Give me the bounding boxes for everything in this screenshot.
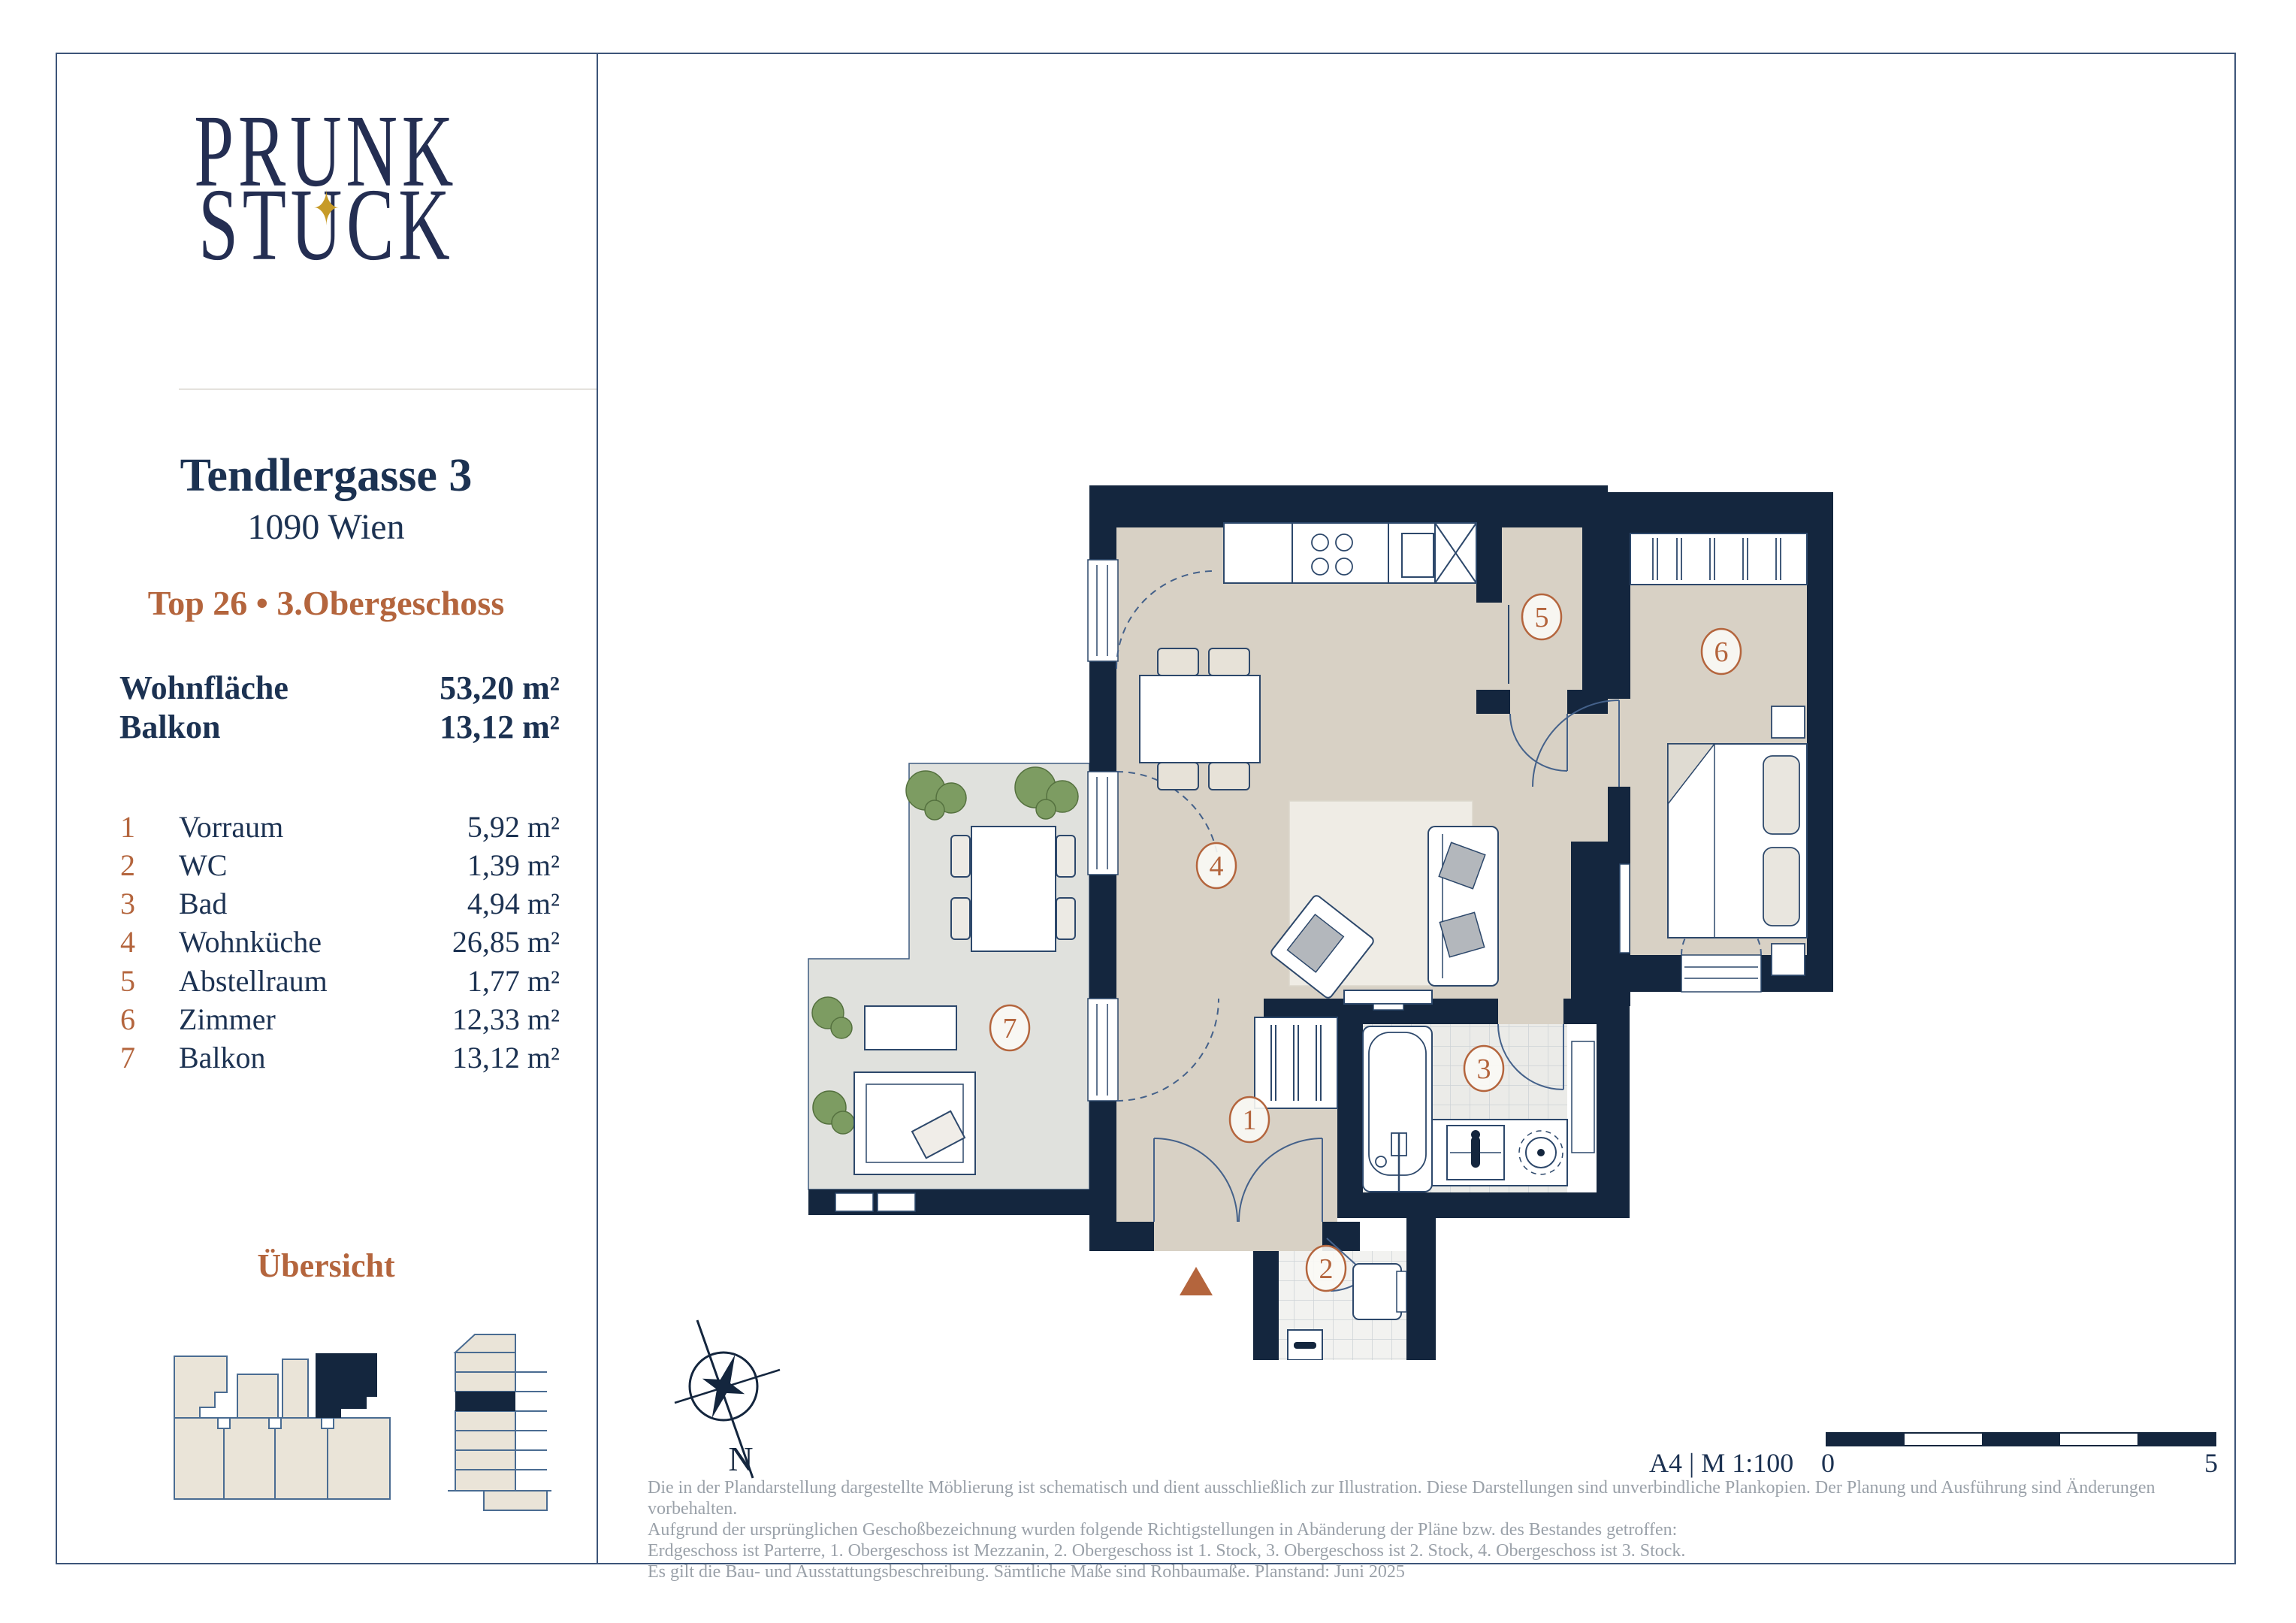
scale-bar	[1826, 1432, 2216, 1446]
toilet	[1353, 1264, 1401, 1319]
summary-label: Balkon	[119, 708, 221, 746]
compass-north-label: N	[728, 1440, 753, 1478]
room-name: WC	[179, 848, 227, 883]
room-name: Zimmer	[179, 1002, 276, 1037]
room-list-item: 3 Bad 4,94 m²	[56, 886, 597, 922]
brand-logo-line2: STUCK✦	[56, 188, 597, 261]
room-list-item: 1 Vorraum 5,92 m²	[56, 809, 597, 845]
room-label-4: 4	[1197, 843, 1236, 888]
kitchen-sink	[1402, 533, 1433, 577]
balcony-door	[1088, 772, 1118, 875]
room-number: 6	[120, 1002, 135, 1037]
disclaimer-block: Die in der Plandarstellung dargestellte …	[648, 1477, 2229, 1582]
room-label-2: 2	[1307, 1246, 1346, 1291]
scale-segment	[1827, 1434, 1905, 1445]
svg-text:1: 1	[1243, 1105, 1257, 1136]
brand-logo: PRUNK STUCK✦	[56, 114, 597, 261]
balcony-window	[878, 1193, 915, 1211]
overview-section-diagram	[440, 1330, 553, 1514]
floorplan-sheet: PRUNK STUCK✦ Tendlergasse 3 1090 Wien To…	[0, 0, 2296, 1623]
chair	[1056, 836, 1075, 877]
scale-segment	[1905, 1434, 1982, 1445]
room-name: Balkon	[179, 1040, 266, 1075]
svg-text:7: 7	[1003, 1013, 1017, 1044]
disclaimer-line: Erdgeschoss ist Parterre, 1. Obergeschos…	[648, 1540, 2229, 1561]
tv-sideboard	[1344, 990, 1432, 1004]
room-label-5: 5	[1522, 594, 1561, 639]
summary-label: Wohnfläche	[119, 669, 289, 707]
svg-text:2: 2	[1319, 1253, 1334, 1285]
chair	[1158, 763, 1198, 790]
living-furniture	[1270, 801, 1498, 1010]
room-area: 1,77 m²	[467, 963, 560, 999]
room-label-6: 6	[1702, 629, 1741, 674]
star-icon: ✦	[313, 171, 340, 247]
room-number: 7	[120, 1040, 135, 1075]
room-area: 26,85 m²	[452, 924, 560, 960]
room-name: Abstellraum	[179, 963, 328, 999]
room-number: 2	[120, 848, 135, 883]
room-area: 1,39 m²	[467, 848, 560, 883]
svg-text:4: 4	[1210, 851, 1224, 882]
scale-segment	[1982, 1434, 2059, 1445]
room-name: Wohnküche	[179, 924, 322, 960]
outdoor-table	[971, 827, 1056, 951]
unit-line: Top 26 • 3.Obergeschoss	[56, 583, 597, 623]
nightstand	[1772, 944, 1805, 975]
balcony-window	[835, 1193, 873, 1211]
pillow	[1763, 848, 1799, 926]
compass-icon: N	[669, 1311, 804, 1488]
room-label-7: 7	[990, 1005, 1029, 1050]
svg-text:6: 6	[1714, 636, 1729, 668]
summary-row: Balkon 13,12 m²	[56, 708, 597, 747]
room-area: 4,94 m²	[467, 886, 560, 921]
room-number: 5	[120, 963, 135, 999]
disclaimer-line: Aufgrund der ursprünglichen Geschoßbezei…	[648, 1519, 2229, 1540]
entrance-arrow-icon	[1180, 1267, 1213, 1295]
disclaimer-line: Es gilt die Bau- und Ausstattungsbeschre…	[648, 1561, 2229, 1582]
room-name: Bad	[179, 886, 227, 921]
hall-wardrobe	[1255, 1017, 1337, 1108]
room-number: 4	[120, 924, 135, 960]
french-window	[1088, 560, 1118, 661]
room-area: 12,33 m²	[452, 1002, 560, 1037]
sidebar-divider	[597, 53, 598, 1564]
scale-end-label: 5	[2204, 1447, 2218, 1479]
balcony-door	[1088, 999, 1118, 1101]
overview-floorplate-diagram	[168, 1349, 401, 1507]
svg-text:5: 5	[1535, 602, 1549, 633]
chair	[1209, 648, 1249, 675]
brand-logo-st: ST	[198, 167, 290, 282]
city-subtitle: 1090 Wien	[56, 506, 597, 548]
room-label-3: 3	[1464, 1046, 1503, 1091]
chair	[1056, 898, 1075, 939]
chair	[1209, 763, 1249, 790]
highlighted-floor	[455, 1392, 515, 1411]
scale-segment	[2137, 1434, 2215, 1445]
summary-value: 53,20 m²	[440, 669, 560, 707]
room-list-item: 6 Zimmer 12,33 m²	[56, 1002, 597, 1038]
floor-plan: 1 2 3 4 5 6 7	[766, 421, 1893, 1360]
radiator	[1620, 864, 1630, 953]
summary-row: Wohnfläche 53,20 m²	[56, 669, 597, 708]
address-title: Tendlergasse 3	[56, 449, 597, 503]
room-number: 3	[120, 886, 135, 921]
chair	[951, 836, 970, 877]
room-list-item: 5 Abstellraum 1,77 m²	[56, 963, 597, 999]
room-list-item: 4 Wohnküche 26,85 m²	[56, 924, 597, 960]
low-table	[865, 1006, 956, 1050]
summary-value: 13,12 m²	[440, 708, 560, 746]
chair	[951, 898, 970, 939]
scale-start-label: 0	[1821, 1447, 1835, 1479]
highlighted-unit	[316, 1353, 377, 1418]
room-area: 13,12 m²	[452, 1040, 560, 1075]
dining-table	[1140, 675, 1260, 763]
nightstand	[1772, 706, 1805, 738]
disclaimer-line: Die in der Plandarstellung dargestellte …	[648, 1477, 2229, 1519]
overview-title: Übersicht	[56, 1247, 597, 1285]
scale-segment	[2060, 1434, 2137, 1445]
room-number: 1	[120, 809, 135, 845]
chair	[1158, 648, 1198, 675]
bedroom-window	[1681, 955, 1761, 992]
room-area: 5,92 m²	[467, 809, 560, 845]
bath-cabinet	[1572, 1041, 1594, 1153]
pillow	[1763, 756, 1799, 834]
svg-text:3: 3	[1477, 1053, 1491, 1085]
room-list-item: 7 Balkon 13,12 m²	[56, 1040, 597, 1076]
room-label-1: 1	[1230, 1097, 1269, 1142]
brand-logo-ck: CK	[346, 167, 455, 282]
room-name: Vorraum	[179, 809, 283, 845]
divider-rule	[179, 388, 597, 390]
format-scale-text: A4 | M 1:100	[1649, 1447, 1793, 1479]
room-list-item: 2 WC 1,39 m²	[56, 848, 597, 884]
sidebar: PRUNK STUCK✦ Tendlergasse 3 1090 Wien To…	[56, 53, 597, 1564]
brand-logo-text2: STUCK✦	[198, 186, 454, 263]
